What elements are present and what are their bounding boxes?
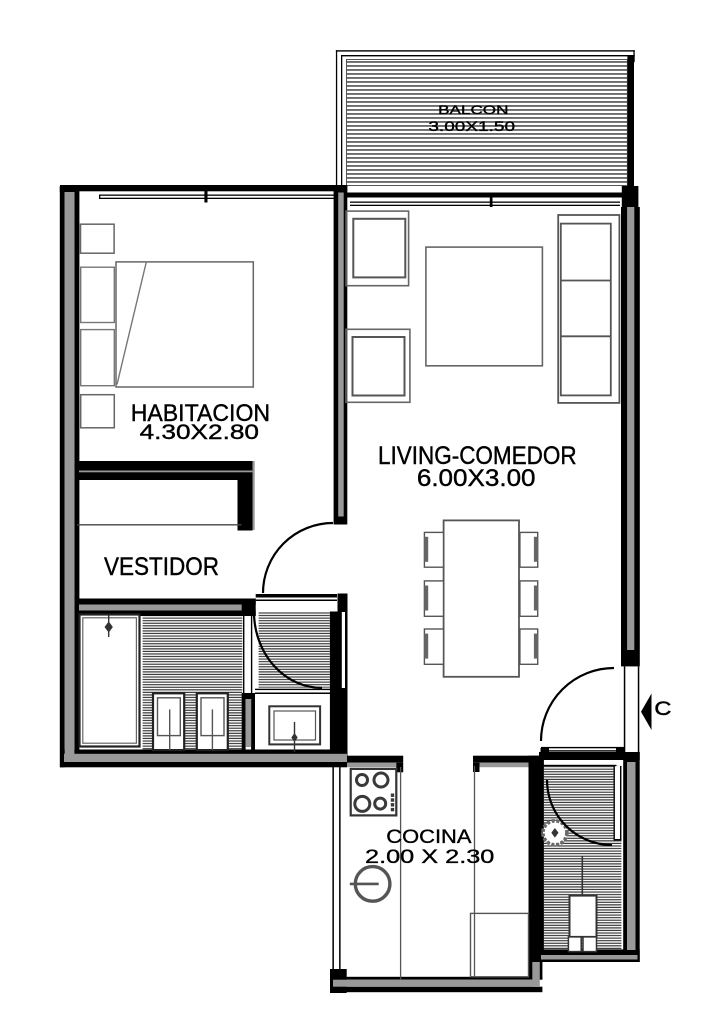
svg-text:3.00X1.50: 3.00X1.50: [428, 119, 515, 134]
svg-text:BALCON: BALCON: [438, 103, 508, 117]
svg-text:2.00 X 2.30: 2.00 X 2.30: [365, 846, 494, 868]
svg-text:6.00X3.00: 6.00X3.00: [417, 465, 536, 492]
svg-text:COCINA: COCINA: [386, 826, 472, 848]
svg-text:C: C: [654, 698, 671, 720]
svg-text:VESTIDOR: VESTIDOR: [104, 554, 219, 581]
svg-text:4.30X2.80: 4.30X2.80: [140, 420, 260, 444]
